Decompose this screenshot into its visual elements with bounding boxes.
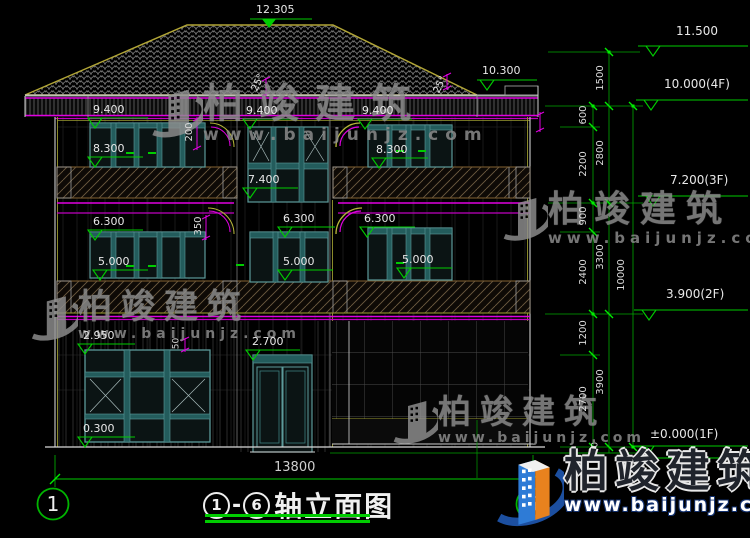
brand-logo: 柏竣建筑 www.baijunjz.com <box>492 450 750 530</box>
brand-logo-icon <box>492 450 564 530</box>
level-label-9400-right: 9.400 <box>362 105 394 116</box>
level-label-9400-center: 9.400 <box>246 105 278 116</box>
dim-1200: 1200 <box>579 311 589 355</box>
title-underline-2 <box>205 520 370 523</box>
watermark-logo-icon <box>388 395 438 447</box>
level-label-5000-right: 5.000 <box>402 254 434 265</box>
level-label-9400-left: 9.400 <box>93 104 125 115</box>
watermark-logo-icon <box>498 192 548 244</box>
dim-350: 350 <box>194 204 204 248</box>
brand-logo-text: 柏竣建筑 <box>564 450 750 494</box>
dim-2400: 2400 <box>579 250 589 294</box>
dim-900: 900 <box>579 194 589 238</box>
watermark-mid: 柏竣建筑 www.baijunjz.com <box>388 395 645 447</box>
dim-50: 50 <box>173 322 182 366</box>
dim-3300: 3300 <box>596 235 606 279</box>
level-label-2950: 2.950 <box>83 330 115 341</box>
watermark-url: www.baijunjz.com <box>203 127 489 144</box>
cad-elevation-drawing: 12.305 10.300 9.400 9.400 9.400 8.300 8.… <box>0 0 750 538</box>
dim-200: 200 <box>185 110 195 154</box>
watermark-brand: 柏竣建筑 <box>438 395 645 428</box>
dim-2800: 2800 <box>596 131 606 175</box>
level-label-3900-2f: 3.900(2F) <box>666 288 724 300</box>
level-label-2700: 2.700 <box>252 336 284 347</box>
level-label-eave: 10.300 <box>482 65 521 76</box>
watermark-url: www.baijunjz.com <box>438 431 645 445</box>
watermark-logo-icon <box>26 290 78 344</box>
level-label-0000-1f: ±0.000(1F) <box>650 428 718 440</box>
level-label-8300-right: 8.300 <box>376 144 408 155</box>
title-underline-1 <box>205 514 370 517</box>
level-label-7200-3f: 7.200(3F) <box>670 174 728 186</box>
dim-overall-width: 13800 <box>274 461 315 474</box>
watermark-right: 柏竣建筑 www.baijunjz.com <box>498 192 750 246</box>
watermark-brand: 柏竣建筑 <box>78 290 301 324</box>
level-label-10000-4f: 10.000(4F) <box>664 78 730 90</box>
level-label-6300-center: 6.300 <box>283 213 315 224</box>
level-label-6300-right: 6.300 <box>364 213 396 224</box>
dim-2700: 2700 <box>579 377 589 421</box>
dim-2200: 2200 <box>579 142 589 186</box>
dim-1500: 1500 <box>596 56 606 100</box>
level-label-11500: 11.500 <box>676 25 718 37</box>
level-label-5000-center: 5.000 <box>283 256 315 267</box>
dim-10000: 10000 <box>617 253 627 297</box>
brand-logo-url: www.baijunjz.com <box>564 496 750 515</box>
dim-3900: 3900 <box>596 360 606 404</box>
level-label-7400: 7.400 <box>248 174 280 185</box>
axis-bubble-1-label: 1 <box>37 488 69 520</box>
level-label-5000-left: 5.000 <box>98 256 130 267</box>
dim-600: 600 <box>579 93 589 137</box>
level-label-0300: 0.300 <box>83 423 115 434</box>
roof-parapet <box>505 86 538 95</box>
level-label-6300-left: 6.300 <box>93 216 125 227</box>
level-label-8300-left: 8.300 <box>93 143 125 154</box>
entrance-door <box>250 355 315 452</box>
level-label-ridge: 12.305 <box>256 4 295 15</box>
